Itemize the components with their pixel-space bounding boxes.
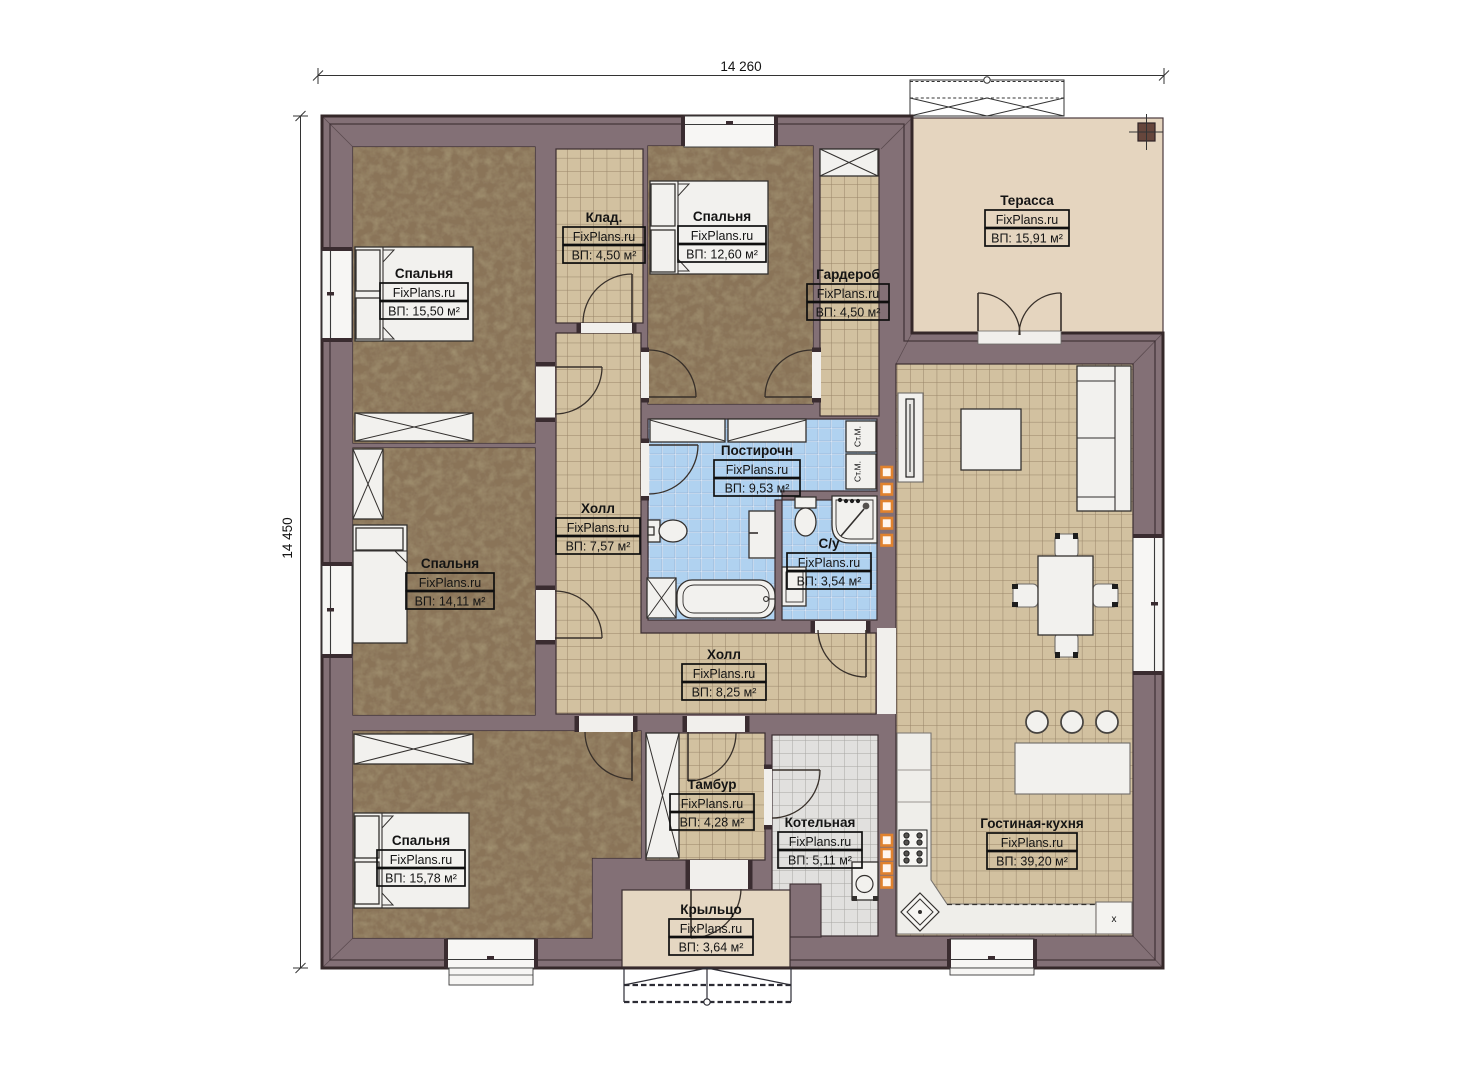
svg-text:Терасса: Терасса — [1000, 193, 1054, 208]
svg-text:Спальня: Спальня — [395, 266, 453, 281]
svg-text:ВП: 39,20 м²: ВП: 39,20 м² — [996, 854, 1068, 868]
svg-text:Гардероб: Гардероб — [816, 267, 880, 282]
svg-text:14 450: 14 450 — [280, 517, 295, 558]
svg-text:FixPlans.ru: FixPlans.ru — [996, 213, 1059, 227]
svg-text:ВП: 9,53 м²: ВП: 9,53 м² — [725, 481, 790, 495]
svg-text:x: x — [1112, 914, 1117, 925]
svg-text:FixPlans.ru: FixPlans.ru — [390, 853, 453, 867]
svg-text:С/у: С/у — [818, 536, 840, 551]
svg-text:Крыльцо: Крыльцо — [680, 902, 741, 917]
svg-text:Спальня: Спальня — [693, 209, 751, 224]
svg-text:ВП: 15,91 м²: ВП: 15,91 м² — [991, 231, 1063, 245]
svg-text:ВП: 15,50 м²: ВП: 15,50 м² — [388, 304, 460, 318]
svg-text:Спальня: Спальня — [392, 833, 450, 848]
svg-text:FixPlans.ru: FixPlans.ru — [681, 797, 744, 811]
svg-text:FixPlans.ru: FixPlans.ru — [693, 667, 756, 681]
svg-text:Котельная: Котельная — [785, 815, 856, 830]
svg-text:FixPlans.ru: FixPlans.ru — [798, 556, 861, 570]
svg-text:Клад.: Клад. — [586, 210, 623, 225]
svg-text:Холл: Холл — [707, 647, 741, 662]
svg-text:FixPlans.ru: FixPlans.ru — [573, 230, 636, 244]
svg-text:ВП: 15,78 м²: ВП: 15,78 м² — [385, 871, 457, 885]
svg-text:ВП: 14,11 м²: ВП: 14,11 м² — [415, 594, 486, 608]
svg-text:ВП: 4,28 м²: ВП: 4,28 м² — [680, 815, 745, 829]
svg-text:ВП: 12,60 м²: ВП: 12,60 м² — [686, 247, 758, 261]
svg-text:ВП: 3,54 м²: ВП: 3,54 м² — [797, 574, 862, 588]
svg-text:FixPlans.ru: FixPlans.ru — [393, 286, 456, 300]
svg-text:FixPlans.ru: FixPlans.ru — [789, 835, 852, 849]
svg-text:14 260: 14 260 — [720, 59, 761, 74]
svg-text:ВП: 5,11 м²: ВП: 5,11 м² — [788, 853, 852, 867]
svg-text:Ст.М.: Ст.М. — [853, 461, 863, 482]
svg-text:FixPlans.ru: FixPlans.ru — [680, 922, 743, 936]
svg-text:ВП: 4,50 м²: ВП: 4,50 м² — [572, 248, 637, 262]
svg-text:FixPlans.ru: FixPlans.ru — [726, 463, 789, 477]
svg-text:FixPlans.ru: FixPlans.ru — [691, 229, 754, 243]
svg-text:ВП: 4,50 м²: ВП: 4,50 м² — [816, 305, 881, 319]
svg-text:ВП: 8,25 м²: ВП: 8,25 м² — [692, 685, 757, 699]
svg-text:Гостиная-кухня: Гостиная-кухня — [980, 816, 1083, 831]
svg-text:FixPlans.ru: FixPlans.ru — [419, 576, 482, 590]
svg-text:Ст.М.: Ст.М. — [853, 426, 863, 447]
svg-text:Тамбур: Тамбур — [688, 777, 737, 792]
svg-text:Спальня: Спальня — [421, 556, 479, 571]
svg-text:Постирочн: Постирочн — [721, 443, 793, 458]
svg-text:ВП: 3,64 м²: ВП: 3,64 м² — [679, 940, 744, 954]
svg-text:ВП: 7,57 м²: ВП: 7,57 м² — [566, 539, 631, 553]
svg-text:FixPlans.ru: FixPlans.ru — [817, 287, 880, 301]
svg-text:FixPlans.ru: FixPlans.ru — [567, 521, 630, 535]
svg-text:Холл: Холл — [581, 501, 615, 516]
svg-text:FixPlans.ru: FixPlans.ru — [1001, 836, 1064, 850]
